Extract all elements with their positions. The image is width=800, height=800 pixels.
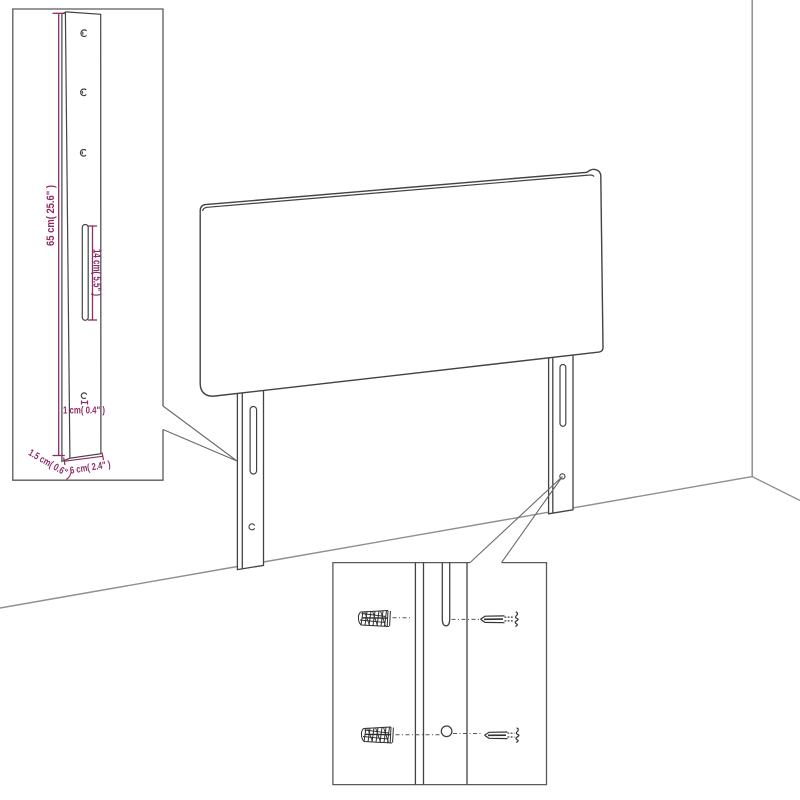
svg-text:65 cm( 25.6" ): 65 cm( 25.6" ) — [45, 185, 57, 246]
svg-text:14 cm( 5.5" ): 14 cm( 5.5" ) — [91, 249, 103, 296]
svg-text:1 cm( 0.4" ): 1 cm( 0.4" ) — [63, 406, 105, 417]
